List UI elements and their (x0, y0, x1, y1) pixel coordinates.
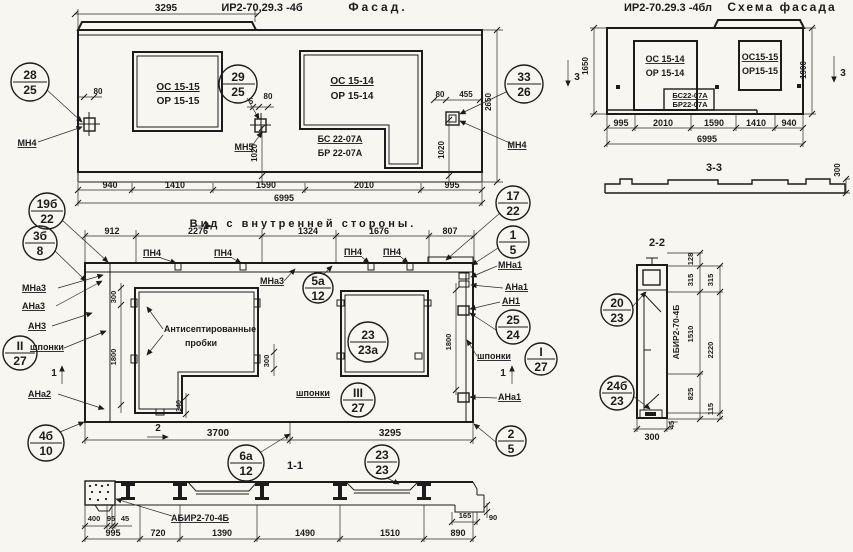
drawing-label: 890 (450, 528, 465, 538)
drawing-label: 300 (644, 432, 659, 442)
drawing-label: 2650 (484, 93, 493, 111)
drawing-label: АНа1 (505, 282, 528, 292)
drawing-label: БС22-07А (672, 91, 708, 100)
drawing-line (459, 281, 469, 287)
drawing-label: ОС 15-14 (330, 76, 374, 87)
drawing-label: ИР2-70.29.3 -4б (221, 2, 303, 14)
marker-top: 5а (311, 274, 325, 288)
marker-bottom: 12 (239, 464, 253, 478)
drawing-line (255, 483, 269, 500)
drawing-line (121, 483, 135, 500)
marker-bottom: 5 (510, 243, 517, 257)
drawing-label: ОР 15-15 (157, 96, 200, 107)
marker-top: 2 (508, 427, 515, 441)
position-marker: 15 (497, 226, 529, 258)
facade-top-bevel (78, 22, 256, 30)
drawing-label: 5 (249, 97, 254, 106)
marker-top: III (353, 386, 363, 400)
marker-top: 33 (517, 70, 531, 84)
drawing-line (58, 394, 104, 409)
drawing-label: ОР 15-14 (646, 68, 685, 78)
marker-top: 6а (239, 449, 253, 463)
drawing-label: МНа3 (22, 283, 46, 293)
marker-top: 4б (39, 429, 53, 443)
drawing-line (633, 396, 650, 409)
marker-top: 20 (610, 296, 624, 310)
drawing-label: 1650 (581, 57, 590, 75)
marker-top: 19б (37, 197, 58, 211)
section-2-2-column (637, 265, 667, 418)
marker-bottom: 27 (351, 401, 365, 415)
marker-bottom: 23 (610, 311, 624, 325)
drawing-label: 995 (444, 180, 459, 190)
leader (38, 127, 82, 142)
opening-right (341, 291, 428, 376)
drawing-label: 2010 (653, 118, 673, 128)
marker-bottom: 8 (37, 244, 44, 258)
drawing-label: Фасад. (348, 0, 407, 14)
drawing-label: 1590 (256, 180, 276, 190)
marker-bottom: 22 (40, 212, 54, 226)
drawing-line (91, 491, 93, 493)
section-3-3-view (605, 176, 850, 196)
drawing-label: 90 (489, 513, 497, 522)
marker-top: 24б (607, 379, 628, 393)
drawing-label: 400 (88, 514, 101, 523)
marker-bottom: 24 (506, 328, 520, 342)
drawing-line (471, 266, 497, 277)
anchor-mn4-right (446, 112, 459, 125)
drawing-label: АН3 (28, 321, 46, 331)
drawing-label: 1 (500, 368, 506, 379)
rebar-dots (89, 484, 109, 501)
marker-top: 23 (375, 448, 389, 462)
drawing-line (643, 270, 660, 285)
marker-bottom: 5 (508, 442, 515, 456)
drawing-line (368, 263, 374, 270)
marker-top: 23 (361, 328, 375, 342)
drawing-label: БР 22-07А (318, 148, 363, 158)
drawing-line (470, 302, 500, 309)
marker-bottom: 23а (358, 343, 378, 357)
drawing-line (175, 263, 181, 270)
blueprint-sheet: 28252925332619б223б81722155а122323а2524I… (0, 0, 853, 552)
drawing-label: ПН4 (344, 247, 362, 257)
position-marker: 2323а (348, 322, 388, 362)
drawing-line (107, 491, 109, 493)
position-marker: 3б8 (23, 226, 57, 260)
marker-top: 3б (33, 229, 47, 243)
scheme-top-bevel (714, 20, 804, 28)
drawing-line (458, 306, 469, 315)
drawing-line (645, 412, 656, 416)
drawing-line (95, 484, 97, 486)
drawing-label: 807 (442, 226, 457, 236)
drawing-line (121, 283, 456, 418)
drawing-label: пробки (185, 338, 217, 348)
drawing-label: АНа3 (22, 301, 45, 311)
marker-bottom: 10 (39, 444, 53, 458)
drawing-line (262, 30, 497, 182)
marker-top: 28 (23, 68, 37, 82)
drawing-line (459, 273, 469, 279)
drawing-label: МНа3 (260, 276, 284, 286)
drawing-label: АНа2 (28, 389, 51, 399)
drawing-label: шпонки (477, 351, 511, 361)
drawing-label: ИР2-70.29.3 -4бл (624, 2, 712, 14)
drawing-label: ОС 15-15 (156, 82, 200, 93)
drawing-line (474, 424, 497, 443)
drawing-label: 912 (104, 226, 119, 236)
opening-left (135, 288, 258, 413)
position-marker: 3326 (505, 65, 543, 103)
drawing-line (616, 85, 620, 89)
drawing-line (147, 335, 163, 355)
drawing-line (173, 483, 187, 500)
drawing-line (644, 294, 661, 408)
inner-view (52, 213, 512, 484)
marker-bottom: 22 (506, 204, 520, 218)
drawing-label: 315 (706, 274, 715, 287)
marker-bottom: 23 (375, 463, 389, 477)
drawing-label: 80 (436, 90, 445, 99)
drawing-label: 3 (574, 72, 580, 83)
drawing-label: МН4 (507, 140, 526, 150)
drawing-label: 455 (459, 90, 473, 99)
drawing-line (415, 353, 422, 359)
drawing-label: БС 22-07А (318, 134, 363, 144)
drawing-label: АН1 (502, 296, 520, 306)
position-marker: 2023 (601, 294, 633, 326)
marker-top: 29 (231, 70, 245, 84)
section-1-1-view (82, 481, 490, 542)
marker-top: II (17, 339, 24, 353)
drawing-line (417, 483, 431, 500)
drawing-line (458, 393, 469, 402)
drawing-label: 1020 (437, 141, 446, 159)
position-marker: 19б22 (29, 193, 65, 229)
drawing-label: 1-1 (287, 460, 303, 472)
drawing-line (333, 483, 347, 500)
drawing-label: 1410 (746, 118, 766, 128)
drawing-label: 45 (667, 421, 676, 429)
drawing-label: 3 (840, 68, 846, 79)
drawing-label: ПН4 (143, 248, 161, 258)
drawing-line (715, 85, 719, 89)
drawing-label: 300 (262, 355, 271, 368)
drawing-label: Антисептированные (164, 324, 256, 334)
drawing-label: БР22-07А (673, 100, 709, 109)
drawing-line (470, 397, 497, 398)
drawing-line (147, 307, 163, 329)
drawing-line (407, 263, 413, 270)
position-marker: 2323 (365, 445, 399, 479)
marker-bottom: 27 (13, 354, 27, 368)
drawing-label: АБИР2-70-4Б (671, 305, 681, 360)
drawing-line (89, 498, 91, 500)
drawing-line (446, 213, 500, 260)
drawing-label: 3295 (379, 428, 402, 439)
drawing-label: 1900 (799, 61, 808, 79)
drawing-label: 340 (176, 400, 183, 412)
position-marker: I27 (525, 343, 557, 375)
drawing-label: МН4 (17, 138, 36, 148)
drawing-label: шпонки (296, 388, 330, 398)
drawing-line (472, 248, 498, 265)
drawing-label: 1324 (298, 226, 318, 236)
drawing-label: 1510 (380, 528, 400, 538)
drawing-label: 825 (686, 388, 695, 401)
section-3-3-profile (605, 179, 845, 193)
position-marker: 2825 (11, 63, 49, 101)
drawing-line (56, 281, 102, 306)
marker-bottom: 12 (311, 289, 325, 303)
drawing-label: Схема фасада (727, 0, 836, 14)
drawing-label: 940 (102, 180, 117, 190)
drawing-line (797, 84, 801, 88)
drawing-label: 1510 (686, 326, 695, 343)
drawing-label: ОС15-15 (742, 52, 779, 62)
marker-top: 17 (506, 189, 520, 203)
drawing-label: 3-3 (706, 162, 722, 174)
inner-panel-outline (85, 263, 473, 422)
marker-top: 1 (510, 228, 517, 242)
drawing-label: 115 (706, 403, 715, 415)
position-marker: 2524 (496, 310, 530, 344)
drawing-label: 1 (51, 368, 57, 379)
drawing-label: шпонки (30, 342, 64, 352)
drawing-label: 315 (686, 274, 695, 287)
drawing-label: 1590 (704, 118, 724, 128)
drawing-label: 6995 (274, 193, 294, 203)
drawing-label: 3700 (207, 428, 230, 439)
drawing-label: 1020 (250, 144, 259, 162)
drawing-line (118, 285, 459, 417)
drawing-line (188, 482, 257, 494)
drawing-label: 80 (264, 92, 273, 101)
drawing-label: 1390 (212, 528, 232, 538)
drawing-label: 1800 (109, 349, 118, 366)
drawing-label: 6995 (697, 134, 717, 144)
drawing-label: ОС 15-14 (645, 54, 684, 64)
position-marker: 6а12 (228, 445, 264, 481)
drawing-label: 1410 (165, 180, 185, 190)
position-marker: 25 (496, 426, 526, 456)
drawing-label: 165 (459, 511, 472, 520)
drawing-label: АБИР2-70-4Б (171, 513, 229, 523)
facade-bottom-strip (78, 172, 482, 182)
marker-bottom: 27 (534, 360, 548, 374)
technical-drawing: 28252925332619б223б81722155а122323а2524I… (0, 0, 853, 552)
marker-top: 25 (506, 313, 520, 327)
drawing-label: 45 (121, 514, 129, 523)
drawing-line (284, 269, 295, 281)
drawing-label: 995 (105, 528, 120, 538)
drawing-line (105, 498, 107, 500)
drawing-label: АНа1 (498, 392, 521, 402)
drawing-line (240, 263, 246, 270)
drawing-label: 95 (107, 514, 115, 523)
position-marker: 1722 (496, 186, 530, 220)
marker-bottom: 25 (231, 85, 245, 99)
drawing-line (55, 251, 86, 281)
drawing-label: 995 (613, 118, 628, 128)
drawing-label: 2-2 (649, 237, 665, 249)
drawing-label: 2 (155, 423, 161, 434)
drawing-label: 1490 (295, 528, 315, 538)
drawing-line (95, 505, 113, 511)
drawing-label: 2 (203, 221, 209, 232)
drawing-line (58, 275, 103, 288)
drawing-line (107, 484, 109, 486)
facade-view (38, 9, 512, 206)
marker-bottom: 23 (610, 394, 624, 408)
drawing-line (139, 292, 254, 409)
drawing-line (250, 113, 271, 137)
position-marker: III27 (341, 383, 375, 417)
position-marker: 24б23 (600, 376, 634, 410)
drawing-label: 2010 (354, 180, 374, 190)
leader (460, 121, 512, 144)
drawing-label: 3295 (155, 3, 178, 14)
drawing-line (89, 485, 91, 487)
drawing-line (261, 434, 290, 452)
marker-bottom: 25 (23, 83, 37, 97)
drawing-labels: 3295ИР2-70.29.3 -4бФасад.ОС 15-15ОР 15-1… (17, 0, 846, 538)
drawing-line (99, 491, 101, 493)
drawing-line (79, 112, 100, 136)
drawing-label: ОР 15-14 (331, 91, 374, 102)
drawing-label: 300 (833, 163, 842, 177)
drawing-label: ОР15-15 (742, 66, 778, 76)
drawing-line (60, 422, 84, 432)
drawing-line (346, 482, 418, 493)
drawing-label: 1676 (369, 226, 389, 236)
drawing-label: ПН4 (383, 247, 401, 257)
drawing-line (471, 285, 503, 288)
drawing-label: 720 (150, 528, 165, 538)
drawing-label: 128 (686, 253, 695, 266)
position-marker: 4б10 (28, 425, 64, 461)
drawing-line (345, 295, 424, 372)
drawing-label: 940 (781, 118, 796, 128)
drawing-line (101, 485, 103, 487)
drawing-line (97, 499, 99, 501)
drawing-label: МНа1 (498, 260, 522, 270)
drawing-label: 2220 (706, 342, 715, 359)
marker-top: I (539, 345, 542, 359)
leader (47, 90, 82, 122)
drawing-label: 80 (94, 87, 103, 96)
drawing-label: 300 (109, 291, 118, 304)
drawing-label: ПН4 (214, 248, 232, 258)
position-marker: 5а12 (303, 273, 333, 303)
marker-bottom: 26 (517, 85, 531, 99)
drawing-label: 1800 (444, 334, 453, 351)
